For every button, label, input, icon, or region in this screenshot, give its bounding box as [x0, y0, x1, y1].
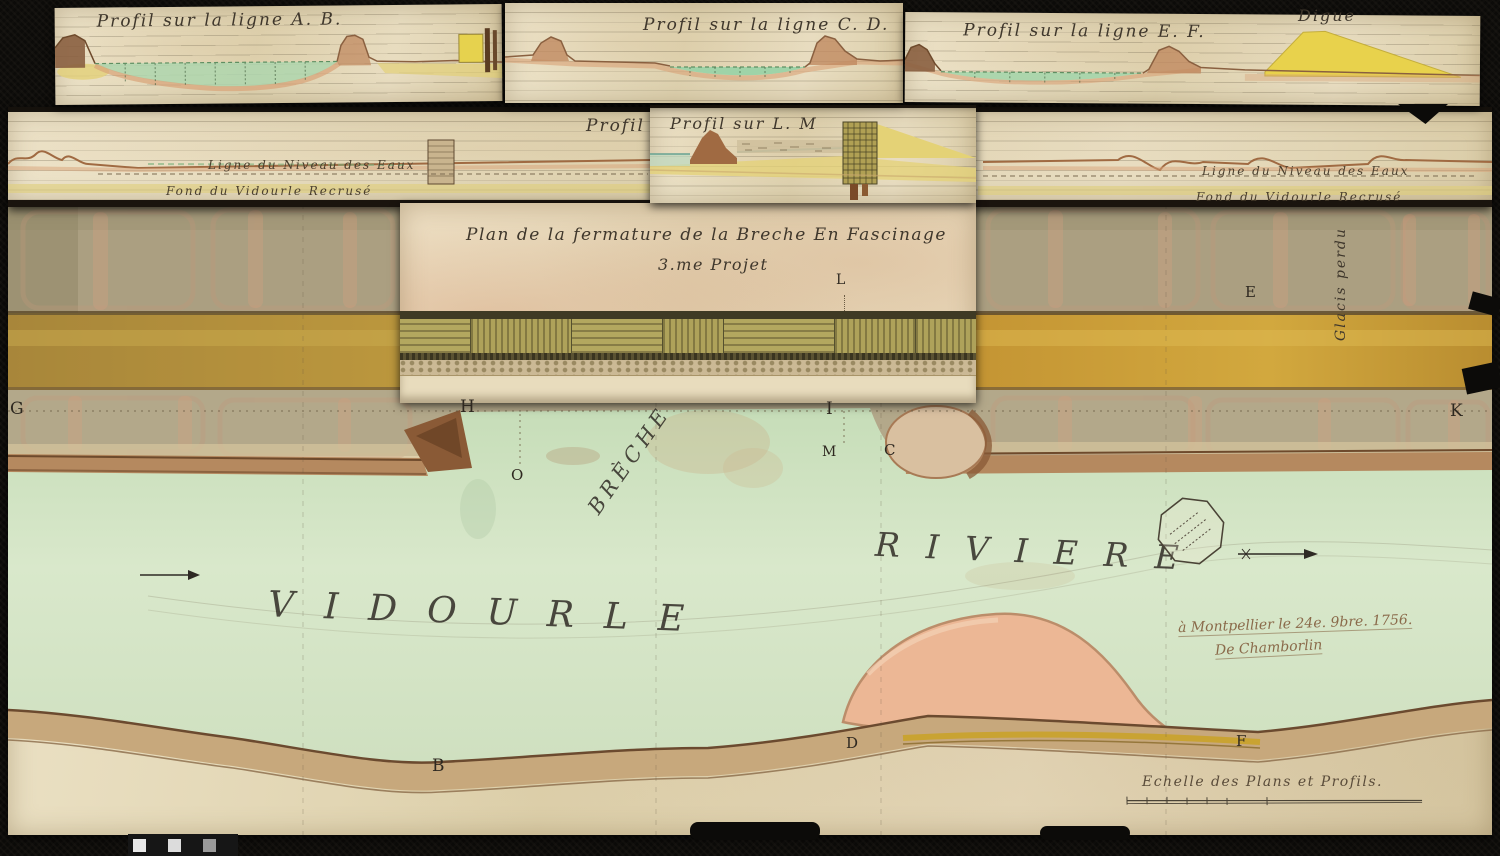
fascine-panel: [724, 319, 835, 353]
scale-label: Echelle des Plans et Profils.: [1142, 774, 1383, 790]
color-calibration-card: [128, 834, 238, 856]
scanned-map-stage: Profil fu Ligne du Niveau des Eaux Fond …: [0, 0, 1500, 856]
marker-g: G: [10, 399, 24, 419]
fascine-panel: [572, 319, 663, 353]
plan-title-line2: 3.me Projet: [658, 255, 768, 274]
torn-edge: [690, 822, 820, 840]
profile-ab-strip: Profil sur la ligne A. B.: [55, 4, 503, 105]
riverbed-label-left: Fond du Vidourle Recrusé: [166, 184, 372, 198]
fascine-panel: [471, 319, 572, 353]
marker-b: B: [432, 756, 445, 776]
riverbed-label-right: Fond du Vidourle Recrusé: [1196, 190, 1402, 204]
marker-h: H: [460, 397, 475, 417]
fascine-panel: [663, 319, 724, 353]
digue-label: Digue: [1298, 6, 1356, 25]
profile-ef-title: Profil sur la ligne E. F.: [963, 20, 1206, 42]
waterline-label-left: Ligne du Niveau des Eaux: [208, 158, 415, 172]
fascine-panel: [400, 319, 471, 353]
marker-c: C: [884, 441, 895, 459]
profile-ef-strip: Profil sur la ligne E. F.: [905, 12, 1481, 106]
profile-ab-title: Profil sur la ligne A. B.: [97, 9, 343, 31]
profile-lm-title: Profil sur L. M: [670, 114, 818, 133]
marker-i: I: [826, 399, 833, 419]
fascinage-band: [400, 311, 976, 319]
fascinage-rim: [400, 353, 976, 360]
calibration-swatch: [168, 839, 181, 852]
torn-edge: [1040, 826, 1130, 840]
calibration-swatch: [203, 839, 216, 852]
glacis-perdu-label: Glacis perdu: [1333, 211, 1349, 341]
fascine-panel: [916, 319, 976, 353]
fascinage-plan-flap: Plan de la fermature de la Breche En Fas…: [400, 203, 976, 402]
marker-f: F: [1236, 732, 1246, 750]
marker-l: L: [836, 272, 845, 288]
plan-title-line1: Plan de la fermature de la Breche En Fas…: [466, 225, 947, 245]
marker-k: K: [1450, 401, 1463, 421]
marker-m: M: [822, 444, 836, 460]
marker-o: O: [511, 466, 523, 484]
calibration-swatch: [133, 839, 146, 852]
cobble-strip: [400, 360, 976, 375]
profile-lm-flap: Profil sur L. M: [650, 105, 976, 203]
profile-cd-title: Profil sur la ligne C. D.: [643, 15, 889, 35]
fascinage-weave: [400, 319, 976, 353]
flow-arrow-left-icon: [140, 568, 200, 582]
flow-arrow-right-icon: [1238, 546, 1318, 562]
glacis-edge: [400, 375, 976, 403]
waterline-label-right: Ligne du Niveau des Eaux: [1202, 164, 1409, 178]
fascine-panel: [835, 319, 916, 353]
marker-e: E: [1245, 283, 1256, 301]
marker-d: D: [846, 734, 858, 752]
profile-cd-strip: Profil sur la ligne C. D.: [505, 3, 903, 103]
